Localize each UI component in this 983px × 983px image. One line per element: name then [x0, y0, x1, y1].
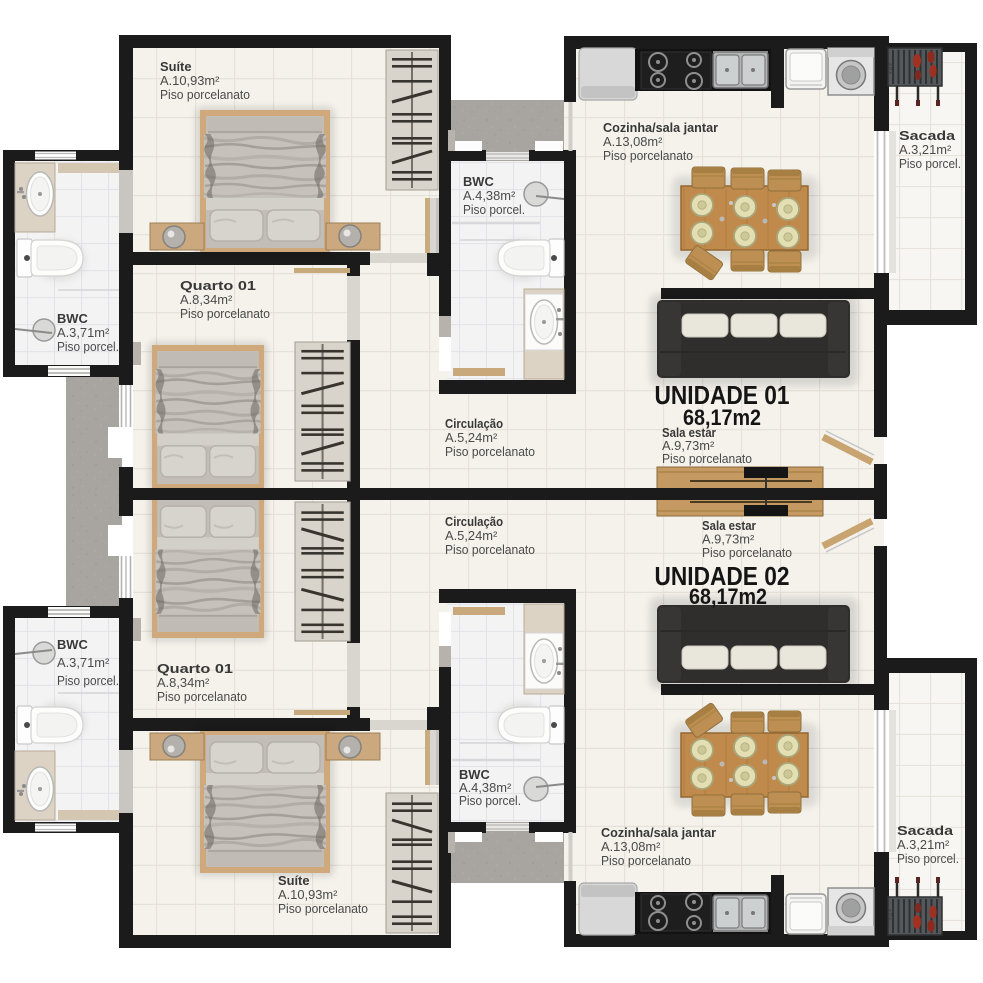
- svg-text:A.4,38m²: A.4,38m²: [463, 188, 516, 203]
- svg-text:A.13,08m²: A.13,08m²: [603, 134, 663, 149]
- svg-text:Piso porcel.: Piso porcel.: [463, 202, 525, 217]
- svg-text:Piso porcel.: Piso porcel.: [899, 156, 961, 171]
- svg-text:Cozinha/sala jantar: Cozinha/sala jantar: [601, 825, 716, 840]
- svg-text:BWC: BWC: [57, 311, 88, 326]
- svg-text:Piso porcelanato: Piso porcelanato: [662, 451, 752, 466]
- svg-text:A.8,34m²: A.8,34m²: [180, 292, 233, 307]
- svg-text:Piso porcelanato: Piso porcelanato: [278, 901, 368, 916]
- svg-text:Piso porcel.: Piso porcel.: [57, 673, 119, 688]
- svg-text:A.10,93m²: A.10,93m²: [160, 73, 220, 88]
- svg-text:Suíte: Suíte: [160, 59, 192, 74]
- svg-text:Suíte: Suíte: [278, 873, 310, 888]
- svg-text:Piso porcelanato: Piso porcelanato: [702, 545, 792, 560]
- svg-text:A.5,24m²: A.5,24m²: [445, 528, 498, 543]
- svg-text:Sacada: Sacada: [897, 823, 954, 838]
- svg-text:Piso porcelanato: Piso porcelanato: [445, 444, 535, 459]
- svg-text:Quarto 01: Quarto 01: [180, 278, 256, 293]
- svg-text:YAY: YAY: [888, 62, 895, 75]
- svg-text:Piso porcelanato: Piso porcelanato: [157, 689, 247, 704]
- svg-text:A.8,34m²: A.8,34m²: [157, 675, 210, 690]
- svg-text:A.5,24m²: A.5,24m²: [445, 430, 498, 445]
- svg-text:Quarto 01: Quarto 01: [157, 661, 233, 676]
- svg-text:Piso porcelanato: Piso porcelanato: [445, 542, 535, 557]
- svg-text:Circulação: Circulação: [445, 514, 503, 529]
- svg-text:BWC: BWC: [57, 637, 88, 652]
- svg-text:Circulação: Circulação: [445, 416, 503, 431]
- svg-text:Piso porcelanato: Piso porcelanato: [180, 306, 270, 321]
- svg-text:Cozinha/sala jantar: Cozinha/sala jantar: [603, 120, 718, 135]
- svg-text:BWC: BWC: [463, 174, 494, 189]
- svg-text:Piso porcel.: Piso porcel.: [459, 793, 521, 808]
- svg-text:Piso porcelanato: Piso porcelanato: [601, 853, 691, 868]
- svg-text:Piso porcelanato: Piso porcelanato: [160, 87, 250, 102]
- svg-text:A.3,21m²: A.3,21m²: [899, 142, 952, 157]
- svg-text:A.3,71m²: A.3,71m²: [57, 655, 110, 670]
- svg-text:A.3,21m²: A.3,21m²: [897, 837, 950, 852]
- svg-text:Piso porcel.: Piso porcel.: [897, 851, 959, 866]
- svg-text:A.13,08m²: A.13,08m²: [601, 839, 661, 854]
- svg-text:Sacada: Sacada: [899, 128, 956, 143]
- svg-text:A.3,71m²: A.3,71m²: [57, 325, 110, 340]
- svg-text:A.10,93m²: A.10,93m²: [278, 887, 338, 902]
- svg-text:Piso porcel.: Piso porcel.: [57, 339, 119, 354]
- svg-text:68,17m2: 68,17m2: [689, 584, 767, 609]
- svg-text:Piso porcelanato: Piso porcelanato: [603, 148, 693, 163]
